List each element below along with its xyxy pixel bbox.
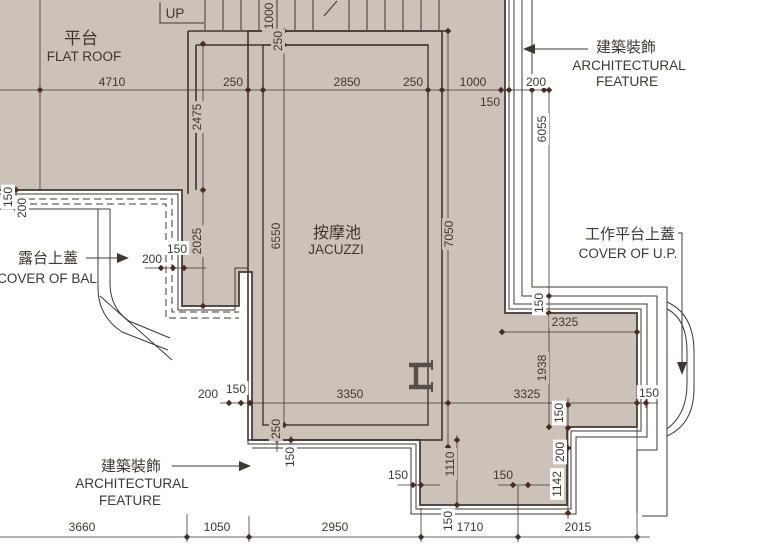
arrow-right-icon: [239, 461, 251, 471]
dim-label: 150: [493, 468, 513, 482]
cover-of-bal-leader: [86, 253, 129, 263]
room-label-jacuzzi-zh: 按摩池: [313, 224, 361, 242]
dim-label: 1142: [550, 471, 564, 497]
annotation-arch-feature-top-zh: 建築裝飾: [596, 38, 656, 56]
dim-label: 2475: [190, 103, 204, 130]
dim-tick: [170, 265, 177, 272]
dim-label: 1000: [460, 75, 487, 89]
dim-label: 250: [271, 31, 285, 51]
dim-tick: [565, 510, 572, 517]
annotation-arch-feature-top-en2: FEATURE: [596, 74, 658, 89]
dim-label: 2950: [322, 520, 349, 534]
annotation-arch-feature-bottom-en1: ARCHITECTURAL: [75, 476, 189, 491]
dim-label: 150: [167, 242, 187, 256]
dim-label: 150: [226, 382, 246, 396]
dim-label: 150: [441, 511, 455, 531]
dim-label: 150: [552, 403, 566, 423]
dim-label: 6550: [269, 222, 283, 249]
dim-label: 150: [283, 447, 297, 467]
dim-tick: [643, 400, 650, 407]
dim-label: 6055: [535, 115, 549, 142]
annotation-arch-feature-top-en1: ARCHITECTURAL: [572, 58, 686, 73]
dim-tick: [418, 534, 425, 541]
room-label-flat-roof-en: FLAT ROOF: [47, 49, 122, 64]
dim-label: 1110: [443, 451, 457, 476]
dim-label: 150: [1, 187, 15, 207]
room-label-jacuzzi-en: JACUZZI: [308, 242, 364, 257]
dim-label: 250: [223, 75, 243, 89]
dim-label: 1050: [204, 520, 231, 534]
arrow-down-icon: [677, 362, 687, 375]
dim-label: 150: [639, 386, 659, 400]
dim-label: 1000: [262, 2, 276, 29]
annotation-arch-feature-bottom-zh: 建築裝飾: [101, 457, 161, 475]
floor-plan-drawing: 4710250285025010002001502325200150335033…: [0, 0, 777, 549]
dim-label: 2015: [565, 520, 592, 534]
floor-plan-canvas: 4710250285025010002001502325200150335033…: [0, 0, 777, 549]
dim-label: 3350: [337, 387, 364, 401]
annotation-cover-of-up-zh: 工作平台上蓋: [585, 226, 675, 243]
dim-tick: [184, 534, 191, 541]
dim-label: 1710: [457, 520, 484, 534]
dim-tick: [238, 400, 245, 407]
dim-label: 150: [480, 95, 500, 109]
stair-up-label: UP: [166, 6, 185, 21]
annotation-cover-of-bal-en: COVER OF BAL: [0, 271, 97, 286]
dim-label: 200: [526, 75, 546, 89]
dim-tick: [546, 293, 553, 300]
dim-tick: [506, 87, 513, 94]
dim-tick: [634, 534, 641, 541]
dim-label: 1938: [535, 354, 549, 381]
dim-label: 3325: [514, 387, 541, 401]
dim-tick: [515, 534, 522, 541]
arch-feature-top-leader: [523, 44, 588, 54]
arrow-right-icon: [117, 253, 129, 263]
dim-label: 2025: [190, 227, 204, 254]
dim-label: 2325: [552, 315, 579, 329]
cover-of-up-leader: [677, 233, 687, 375]
dim-label: 200: [198, 387, 218, 401]
arch-feature-bottom-leader: [172, 461, 251, 471]
room-label-flat-roof-zh: 平台: [64, 29, 98, 48]
annotation-cover-of-bal-zh: 露台上蓋: [18, 250, 78, 267]
dim-label: 200: [142, 252, 162, 266]
dim-label: 2850: [334, 75, 361, 89]
annotation-arch-feature-bottom-en2: FEATURE: [99, 493, 161, 508]
dim-label: 250: [269, 419, 283, 439]
dim-tick: [226, 400, 233, 407]
dim-label: 200: [553, 442, 567, 462]
dim-label: 3660: [69, 520, 96, 534]
dim-label: 250: [403, 75, 423, 89]
dim-tick: [246, 534, 253, 541]
dim-label: 150: [388, 468, 408, 482]
annotation-cover-of-up-en: COVER OF U.P.: [579, 246, 678, 261]
dim-label: 150: [532, 293, 546, 313]
dim-label: 4710: [99, 75, 126, 89]
arrow-left-icon: [523, 44, 535, 54]
dim-label: 200: [15, 198, 29, 218]
dim-label: 7050: [442, 220, 456, 247]
